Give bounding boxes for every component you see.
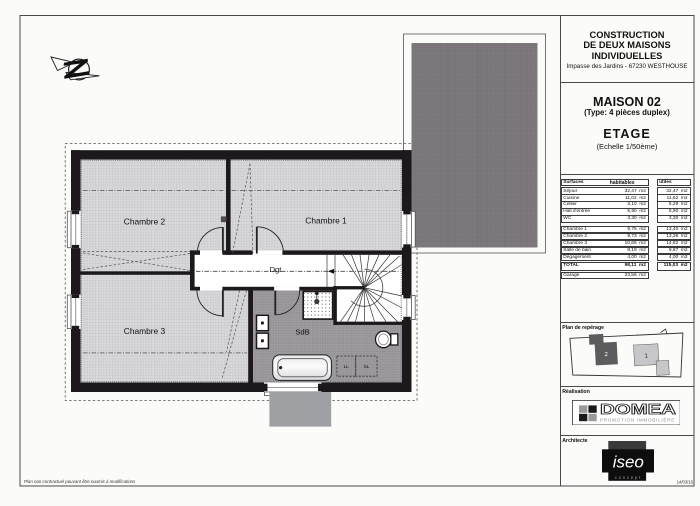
svg-text:Plan non contractuel pouvant ê: Plan non contractuel pouvant être soumis…	[24, 479, 136, 484]
svg-text:DOMEA: DOMEA	[600, 402, 677, 418]
svg-text:SdB: SdB	[295, 328, 309, 337]
svg-text:Dgt: Dgt	[270, 265, 283, 274]
svg-text:Chambre 1: Chambre 1	[305, 216, 347, 226]
svg-text:PROMOTION IMMOBILIÈRE: PROMOTION IMMOBILIÈRE	[600, 416, 675, 422]
svg-text:concept: concept	[615, 475, 642, 480]
svg-text:LL: LL	[344, 364, 350, 369]
svg-text:Chambre 2: Chambre 2	[124, 217, 166, 227]
svg-text:Chambre 3: Chambre 3	[124, 326, 166, 336]
svg-text:SL: SL	[364, 364, 370, 369]
svg-text:iseo: iseo	[613, 452, 644, 471]
